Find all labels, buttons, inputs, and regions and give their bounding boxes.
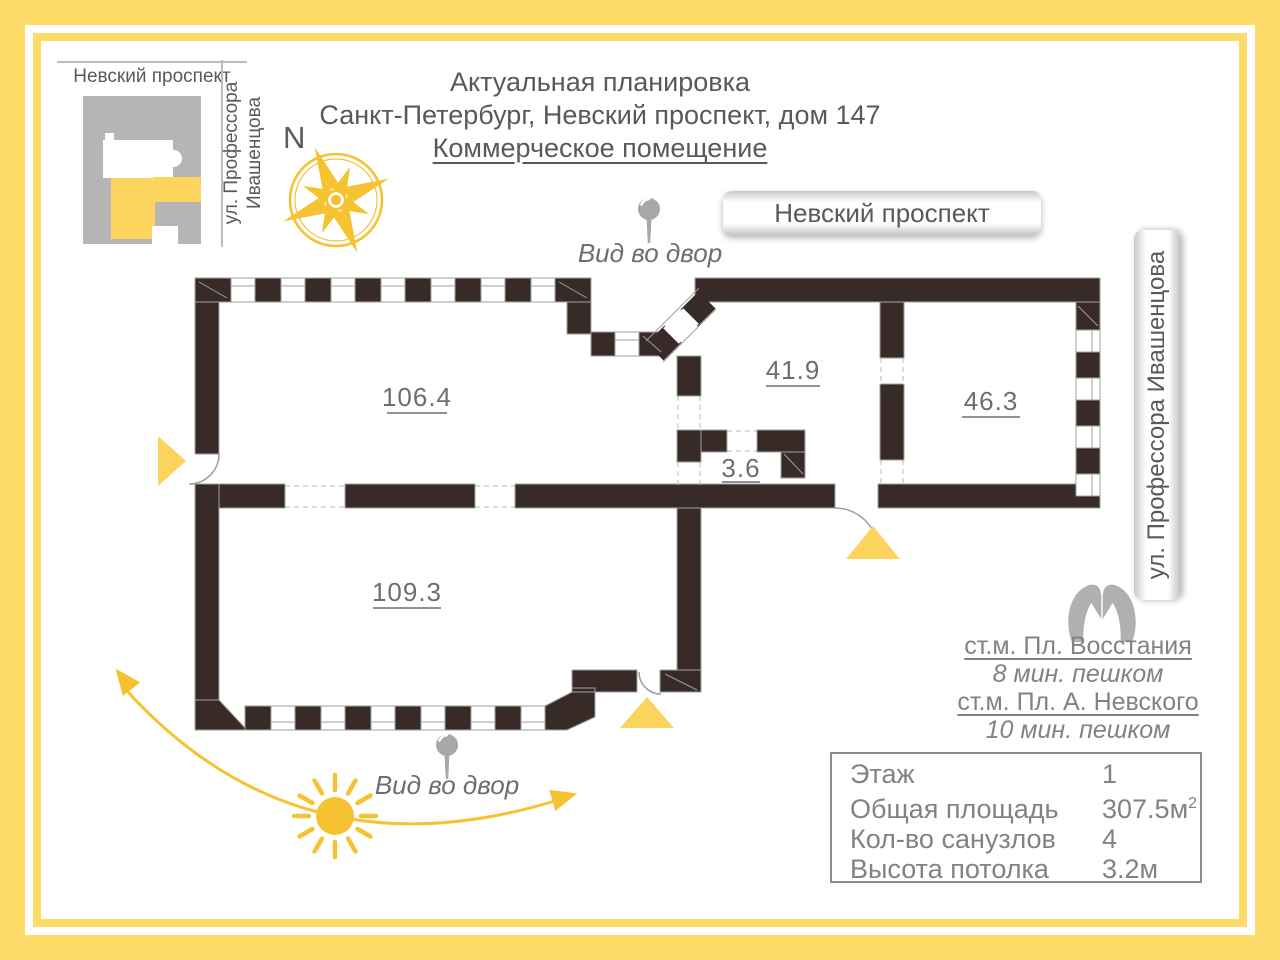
room-label-41-9: 41.9 — [766, 355, 821, 385]
walls — [195, 278, 1100, 730]
entrance-arrow-center — [846, 526, 900, 559]
pin-icon-top — [638, 198, 660, 243]
entrance-arrows — [158, 436, 900, 728]
entrance-arrow-left — [158, 436, 186, 486]
room-label-3-6: 3.6 — [721, 453, 760, 483]
room-label-46-3: 46.3 — [964, 386, 1019, 416]
pin-icon-bottom — [436, 734, 458, 779]
sun-path-arrow-right — [549, 783, 580, 811]
room-label-109-3: 109.3 — [372, 577, 442, 607]
room-label-106-4: 106.4 — [382, 382, 452, 412]
sun-icon — [294, 775, 376, 857]
diagonal-bay — [646, 288, 716, 362]
floor-plan: 106.4 41.9 46.3 3.6 109.3 — [158, 278, 1100, 730]
entrance-arrow-bottom — [620, 697, 674, 728]
sun-path-arrow-left — [107, 662, 140, 696]
floor-plan-scene: N — [0, 0, 1280, 960]
compass-north-label: N — [283, 120, 305, 155]
